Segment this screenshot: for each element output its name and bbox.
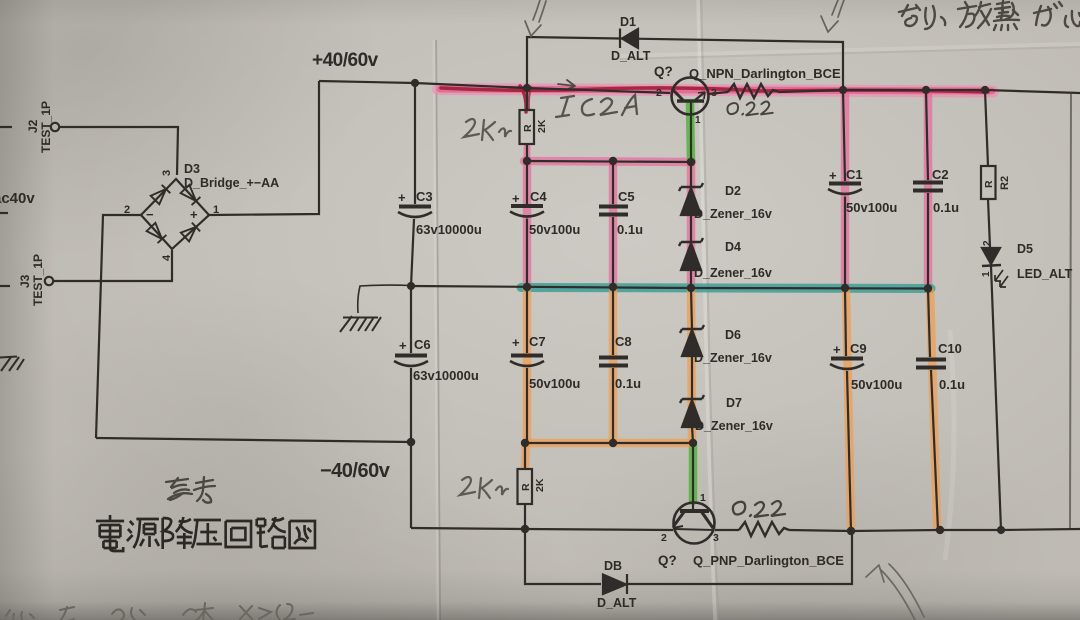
svg-text:+: + <box>190 207 198 222</box>
svg-text:0.1u: 0.1u <box>933 200 959 215</box>
svg-text:Q?: Q? <box>654 64 673 79</box>
svg-text:4: 4 <box>161 254 173 261</box>
svg-text:D3: D3 <box>184 162 200 176</box>
svg-text:DB: DB <box>604 559 622 573</box>
svg-text:−40/60v: −40/60v <box>320 460 391 482</box>
svg-text:D_Zener_16v: D_Zener_16v <box>695 419 773 433</box>
svg-text:D_Zener_16v: D_Zener_16v <box>694 207 772 221</box>
svg-text:C1: C1 <box>846 167 863 182</box>
svg-text:Q_PNP_Darlington_BCE: Q_PNP_Darlington_BCE <box>693 553 844 568</box>
svg-text:C7: C7 <box>529 334 546 349</box>
svg-text:−: − <box>146 207 154 222</box>
svg-text:C10: C10 <box>938 341 962 356</box>
svg-text:Q_NPN_Darlington_BCE: Q_NPN_Darlington_BCE <box>689 66 841 81</box>
svg-text:2K: 2K <box>536 119 548 133</box>
svg-text:R: R <box>520 483 532 491</box>
svg-text:+: + <box>512 335 520 350</box>
svg-text:C6: C6 <box>414 337 431 352</box>
svg-text:D4: D4 <box>725 240 741 254</box>
svg-text:2: 2 <box>656 87 662 99</box>
svg-text:1: 1 <box>695 115 701 126</box>
svg-text:+: + <box>829 168 837 183</box>
svg-text:2: 2 <box>982 240 993 246</box>
svg-text:R2: R2 <box>999 176 1011 190</box>
svg-text:D_ALT: D_ALT <box>597 596 637 610</box>
svg-text:TEST_1P: TEST_1P <box>31 254 45 306</box>
svg-text:1: 1 <box>981 271 992 277</box>
svg-text:63v10000u: 63v10000u <box>416 222 482 237</box>
svg-text:R: R <box>983 180 995 188</box>
svg-text:3: 3 <box>711 87 717 99</box>
svg-text:D_ALT: D_ALT <box>611 49 651 63</box>
svg-text:D1: D1 <box>620 15 636 29</box>
svg-text:J2: J2 <box>26 119 40 133</box>
svg-text:0.1u: 0.1u <box>939 377 965 392</box>
svg-text:0.1u: 0.1u <box>615 376 641 391</box>
svg-text:TEST_1P: TEST_1P <box>39 101 53 153</box>
svg-text:50v100u: 50v100u <box>529 376 580 391</box>
svg-text:C9: C9 <box>850 341 867 356</box>
svg-text:D7: D7 <box>726 396 742 410</box>
svg-text:R: R <box>522 124 534 132</box>
svg-text:2K: 2K <box>534 478 546 492</box>
svg-text:C2: C2 <box>932 167 949 182</box>
svg-text:+: + <box>512 191 520 206</box>
svg-text:D_Bridge_+−AA: D_Bridge_+−AA <box>184 176 279 190</box>
svg-text:LED_ALT: LED_ALT <box>1017 267 1073 281</box>
svg-text:+40/60v: +40/60v <box>312 50 379 71</box>
svg-text:+: + <box>398 190 406 205</box>
svg-text:+: + <box>833 342 841 357</box>
svg-text:1: 1 <box>700 492 706 504</box>
svg-text:50v100u: 50v100u <box>529 222 580 237</box>
svg-text:D6: D6 <box>725 328 741 342</box>
svg-text:C3: C3 <box>416 189 433 204</box>
svg-text:63v10000u: 63v10000u <box>413 368 479 383</box>
svg-text:+: + <box>399 338 407 353</box>
svg-text:C8: C8 <box>615 334 632 349</box>
svg-text:50v100u: 50v100u <box>846 200 897 215</box>
svg-text:Q?: Q? <box>658 553 677 568</box>
svg-text:D2: D2 <box>725 184 741 198</box>
svg-text:D5: D5 <box>1017 242 1033 256</box>
svg-text:C5: C5 <box>618 189 635 204</box>
svg-text:J3: J3 <box>18 274 32 288</box>
svg-text:50v100u: 50v100u <box>851 377 902 392</box>
svg-text:2: 2 <box>124 204 130 216</box>
svg-text:0.1u: 0.1u <box>617 222 643 237</box>
svg-text:1: 1 <box>213 204 219 216</box>
svg-text:ac40v: ac40v <box>0 190 35 207</box>
svg-text:D_Zener_16v: D_Zener_16v <box>694 266 772 280</box>
svg-text:3: 3 <box>713 532 719 544</box>
svg-text:D_Zener_16v: D_Zener_16v <box>694 351 772 365</box>
svg-text:3: 3 <box>161 170 173 176</box>
svg-text:C4: C4 <box>530 189 547 204</box>
svg-text:2: 2 <box>661 532 667 544</box>
